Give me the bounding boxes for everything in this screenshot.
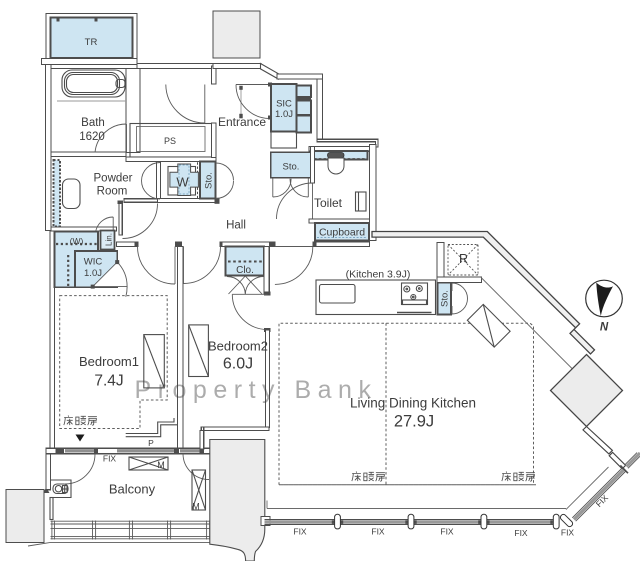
svg-text:Hall: Hall — [226, 220, 246, 232]
svg-text:Bath: Bath — [81, 117, 105, 129]
svg-text:FIX: FIX — [293, 527, 307, 537]
svg-text:Cupboard: Cupboard — [319, 227, 365, 239]
svg-text:FIX: FIX — [561, 528, 575, 538]
svg-text:R: R — [459, 252, 468, 266]
svg-text:Sto.: Sto. — [204, 172, 215, 189]
svg-text:1620: 1620 — [79, 131, 105, 143]
svg-text:FIX: FIX — [440, 527, 454, 537]
svg-text:Sto.: Sto. — [283, 162, 300, 173]
svg-text:PS: PS — [164, 136, 176, 146]
svg-text:FIX: FIX — [371, 527, 385, 537]
svg-text:FIX: FIX — [103, 454, 117, 464]
svg-text:Lin.: Lin. — [105, 233, 114, 246]
svg-text:Bedroom1: Bedroom1 — [79, 354, 139, 369]
svg-text:Clo.: Clo. — [236, 265, 254, 276]
svg-text:7.4J: 7.4J — [94, 373, 123, 390]
svg-text:Balcony: Balcony — [109, 482, 156, 497]
svg-text:M: M — [157, 460, 165, 470]
svg-text:Bedroom2: Bedroom2 — [208, 339, 268, 354]
svg-text:6.0J: 6.0J — [223, 356, 253, 373]
svg-text:(W): (W) — [70, 236, 84, 246]
svg-text:27.9J: 27.9J — [394, 413, 434, 431]
svg-text:WIC: WIC — [84, 257, 103, 268]
svg-text:Entrance: Entrance — [218, 115, 266, 129]
svg-text:Property Bank: Property Bank — [135, 376, 378, 404]
svg-text:Powder: Powder — [94, 173, 133, 185]
svg-text:TR: TR — [85, 37, 98, 48]
svg-text:FIX: FIX — [514, 528, 528, 538]
svg-text:(Kitchen 3.9J): (Kitchen 3.9J) — [346, 269, 411, 281]
svg-text:N: N — [600, 322, 609, 334]
svg-text:W: W — [176, 175, 189, 190]
svg-text:Toilet: Toilet — [314, 196, 343, 210]
svg-text:Room: Room — [97, 186, 128, 198]
svg-text:SIC: SIC — [276, 99, 292, 110]
svg-text:M: M — [192, 502, 200, 512]
svg-text:1.0J: 1.0J — [84, 268, 102, 279]
svg-text:1.0J: 1.0J — [275, 109, 293, 120]
svg-text:P: P — [148, 438, 154, 448]
svg-text:Sto.: Sto. — [440, 290, 451, 307]
